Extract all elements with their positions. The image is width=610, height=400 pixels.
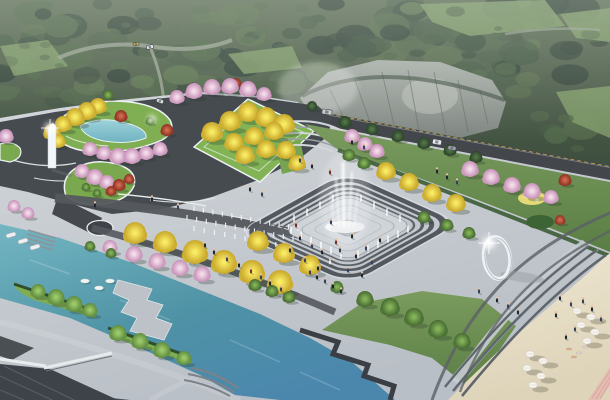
tree-canopy xyxy=(103,90,113,100)
person-head xyxy=(249,185,251,187)
tree-canopy xyxy=(66,296,82,312)
tree-canopy xyxy=(555,215,565,225)
small-jet-base xyxy=(360,200,362,202)
person-head xyxy=(591,305,593,307)
small-jet-base xyxy=(306,214,308,216)
person-head xyxy=(304,256,306,258)
person-body xyxy=(269,281,271,285)
small-jet-base xyxy=(373,207,375,209)
tree-canopy xyxy=(447,194,465,212)
person-body xyxy=(351,234,353,238)
person-head xyxy=(329,258,331,260)
person-head xyxy=(299,156,301,158)
person-body xyxy=(249,187,251,191)
person-head xyxy=(261,190,263,192)
person-body xyxy=(213,250,215,254)
tree-canopy xyxy=(357,291,373,307)
person-body xyxy=(355,254,357,258)
person-body xyxy=(600,317,602,321)
tree-canopy xyxy=(124,148,140,164)
tree-canopy xyxy=(289,155,305,171)
small-jet-base xyxy=(399,220,401,222)
small-jet-base xyxy=(290,232,292,234)
tree-canopy xyxy=(110,325,126,341)
tree-canopy xyxy=(236,146,254,164)
tree-canopy xyxy=(418,137,430,149)
tree-canopy xyxy=(358,157,370,169)
tree-canopy xyxy=(283,291,295,303)
tree-canopy xyxy=(93,189,101,197)
tree-canopy xyxy=(106,248,116,258)
tree-canopy xyxy=(212,250,236,274)
tree-canopy xyxy=(392,130,404,142)
car-window xyxy=(450,147,453,150)
person-body xyxy=(151,197,153,201)
person-body xyxy=(365,246,367,250)
person-head xyxy=(260,273,262,275)
person-head xyxy=(379,236,381,238)
sunbather xyxy=(571,356,576,358)
tree-canopy xyxy=(97,146,111,160)
tree-canopy xyxy=(441,219,453,231)
person-head xyxy=(250,267,252,269)
sunbather xyxy=(576,352,581,354)
person-head xyxy=(351,232,353,234)
tree-canopy xyxy=(559,174,571,186)
person-body xyxy=(478,289,480,293)
person-body xyxy=(517,310,519,314)
person-body xyxy=(324,279,326,283)
tree-canopy xyxy=(265,122,283,140)
person-body xyxy=(436,169,438,173)
person-head xyxy=(311,242,313,244)
person-head xyxy=(280,285,282,287)
small-jet-base xyxy=(330,252,332,254)
person-body xyxy=(582,299,584,303)
person-body xyxy=(570,302,572,306)
tree-canopy xyxy=(470,151,482,163)
person-head xyxy=(436,167,438,169)
tree-canopy xyxy=(238,102,258,122)
person-head xyxy=(582,297,584,299)
person-head xyxy=(177,203,179,205)
tree-canopy xyxy=(429,320,447,338)
tree-canopy xyxy=(240,81,256,97)
person-head xyxy=(446,173,448,175)
tree-canopy xyxy=(170,90,184,104)
tree-canopy xyxy=(418,211,430,223)
person-head xyxy=(309,268,311,270)
tree-canopy xyxy=(154,231,176,253)
tree-canopy xyxy=(139,146,153,160)
person-head xyxy=(600,315,602,317)
tree-canopy xyxy=(544,190,558,204)
person-head xyxy=(347,266,349,268)
tree-canopy xyxy=(177,351,191,365)
tree-canopy xyxy=(248,231,268,251)
tree-canopy xyxy=(257,87,271,101)
person-head xyxy=(330,218,332,220)
person-head xyxy=(340,287,342,289)
tree-canopy xyxy=(115,110,127,122)
person-head xyxy=(574,325,576,327)
person-head xyxy=(317,264,319,266)
person-head xyxy=(299,234,301,236)
small-jet-base xyxy=(377,246,379,248)
tree-canopy xyxy=(220,111,240,131)
fountain-jet xyxy=(343,163,344,227)
tree-canopy xyxy=(222,78,238,94)
person-head xyxy=(507,302,509,304)
person-head xyxy=(517,308,519,310)
person-head xyxy=(496,296,498,298)
person-body xyxy=(363,145,365,149)
person-body xyxy=(446,175,448,179)
floating-platform xyxy=(95,286,104,290)
car-window xyxy=(325,110,329,113)
person-head xyxy=(329,168,331,170)
person-body xyxy=(311,244,313,248)
person-body xyxy=(330,220,332,224)
tree-canopy xyxy=(366,123,378,135)
small-jet-base xyxy=(387,241,389,243)
tree-canopy xyxy=(370,144,384,158)
tree-canopy xyxy=(202,122,222,142)
person-body xyxy=(329,260,331,264)
person-head xyxy=(324,277,326,279)
small-jet-base xyxy=(357,256,359,258)
small-jet-base xyxy=(407,231,409,233)
tree-canopy xyxy=(277,141,295,159)
tree-canopy xyxy=(343,149,355,161)
person-body xyxy=(311,164,313,168)
tree-canopy xyxy=(110,148,126,164)
small-jet-base xyxy=(319,207,321,209)
tree-canopy xyxy=(339,116,351,128)
small-jet-base xyxy=(397,236,399,238)
person-body xyxy=(351,140,353,144)
small-jet-base xyxy=(340,257,342,259)
person-head xyxy=(335,238,337,240)
person-head xyxy=(226,255,228,257)
tree-canopy xyxy=(124,222,146,244)
person-head xyxy=(570,300,572,302)
person-body xyxy=(204,243,206,247)
person-body xyxy=(226,257,228,261)
sunbather xyxy=(566,348,571,350)
person-body xyxy=(340,289,342,293)
tree-canopy xyxy=(154,342,170,358)
person-head xyxy=(213,248,215,250)
person-body xyxy=(574,327,576,331)
tree-canopy xyxy=(423,184,441,202)
tree-canopy xyxy=(257,140,275,158)
tree-canopy xyxy=(83,303,97,317)
tree-canopy xyxy=(462,161,478,177)
person-head xyxy=(355,252,357,254)
person-body xyxy=(555,313,557,317)
tree-canopy xyxy=(153,142,167,156)
tree-canopy xyxy=(126,246,142,262)
tree-canopy xyxy=(483,169,499,185)
person-head xyxy=(565,333,567,335)
person-head xyxy=(361,271,363,273)
tree-canopy xyxy=(454,333,470,349)
tree-canopy xyxy=(381,298,399,316)
person-body xyxy=(507,304,509,308)
tree-canopy xyxy=(83,142,97,156)
forest-tree-blob xyxy=(571,145,584,152)
person-body xyxy=(335,240,337,244)
small-jet-base xyxy=(293,220,295,222)
person-head xyxy=(289,246,291,248)
person-body xyxy=(591,307,593,311)
park-rendering xyxy=(0,0,610,400)
person-head xyxy=(321,248,323,250)
person-head xyxy=(365,244,367,246)
tree-canopy xyxy=(183,240,207,264)
tree-canopy xyxy=(132,333,148,349)
person-body xyxy=(347,268,349,272)
person-head xyxy=(204,241,206,243)
person-body xyxy=(332,284,334,288)
person-head xyxy=(351,138,353,140)
person-head xyxy=(295,221,297,223)
tree-canopy xyxy=(31,284,45,298)
tree-canopy xyxy=(307,101,317,111)
person-head xyxy=(332,282,334,284)
tree-canopy xyxy=(204,79,220,95)
person-head xyxy=(456,178,458,180)
person-body xyxy=(260,275,262,279)
tree-canopy xyxy=(249,279,261,291)
tree-canopy xyxy=(75,164,89,178)
path-light-flare xyxy=(149,116,156,123)
person-body xyxy=(299,236,301,240)
person-body xyxy=(250,269,252,273)
person-body xyxy=(456,180,458,184)
person-body xyxy=(316,275,318,279)
person-body xyxy=(317,266,319,270)
person-body xyxy=(94,203,96,207)
person-body xyxy=(309,270,311,274)
tree-canopy xyxy=(504,177,520,193)
person-head xyxy=(478,287,480,289)
tree-canopy xyxy=(85,241,95,251)
scene-canvas xyxy=(0,0,610,400)
person-head xyxy=(559,294,561,296)
person-body xyxy=(565,335,567,339)
car xyxy=(322,109,333,115)
person-body xyxy=(304,258,306,262)
person-head xyxy=(555,311,557,313)
tree-canopy xyxy=(106,186,116,196)
person-head xyxy=(311,162,313,164)
person-body xyxy=(299,158,301,162)
person-body xyxy=(289,248,291,252)
floating-platform xyxy=(106,279,115,283)
tree-canopy xyxy=(149,253,165,269)
car-window xyxy=(148,46,151,49)
person-body xyxy=(295,223,297,227)
person-head xyxy=(151,195,153,197)
person-body xyxy=(280,287,282,291)
tree-canopy xyxy=(22,207,34,219)
person-head xyxy=(269,279,271,281)
floating-platform xyxy=(81,279,90,283)
person-head xyxy=(316,273,318,275)
tree-canopy xyxy=(463,227,475,239)
car-window xyxy=(435,140,439,144)
tree-canopy xyxy=(82,183,90,191)
tree-canopy xyxy=(377,162,395,180)
tree-canopy xyxy=(524,183,540,199)
sunbather xyxy=(582,346,587,348)
person-head xyxy=(371,258,373,260)
person-body xyxy=(371,260,373,264)
tree-canopy xyxy=(124,174,134,184)
tree-canopy xyxy=(161,124,173,136)
tree-canopy xyxy=(400,173,418,191)
person-body xyxy=(261,192,263,196)
person-body xyxy=(496,298,498,302)
person-body xyxy=(559,296,561,300)
tree-canopy xyxy=(194,266,210,282)
person-head xyxy=(339,246,341,248)
tree-canopy xyxy=(186,83,202,99)
person-head xyxy=(363,143,365,145)
tree-canopy xyxy=(8,200,20,212)
person-body xyxy=(339,248,341,252)
small-jet-base xyxy=(332,200,334,202)
small-jet-base xyxy=(386,214,388,216)
tree-canopy xyxy=(172,260,188,276)
person-head xyxy=(238,261,240,263)
person-body xyxy=(238,263,240,267)
tree-canopy xyxy=(48,289,64,305)
person-body xyxy=(361,273,363,277)
person-body xyxy=(329,170,331,174)
person-body xyxy=(379,238,381,242)
person-head xyxy=(94,201,96,203)
tree-canopy xyxy=(405,308,423,326)
person-body xyxy=(321,250,323,254)
person-body xyxy=(177,205,179,209)
shrub-mound xyxy=(526,215,554,229)
